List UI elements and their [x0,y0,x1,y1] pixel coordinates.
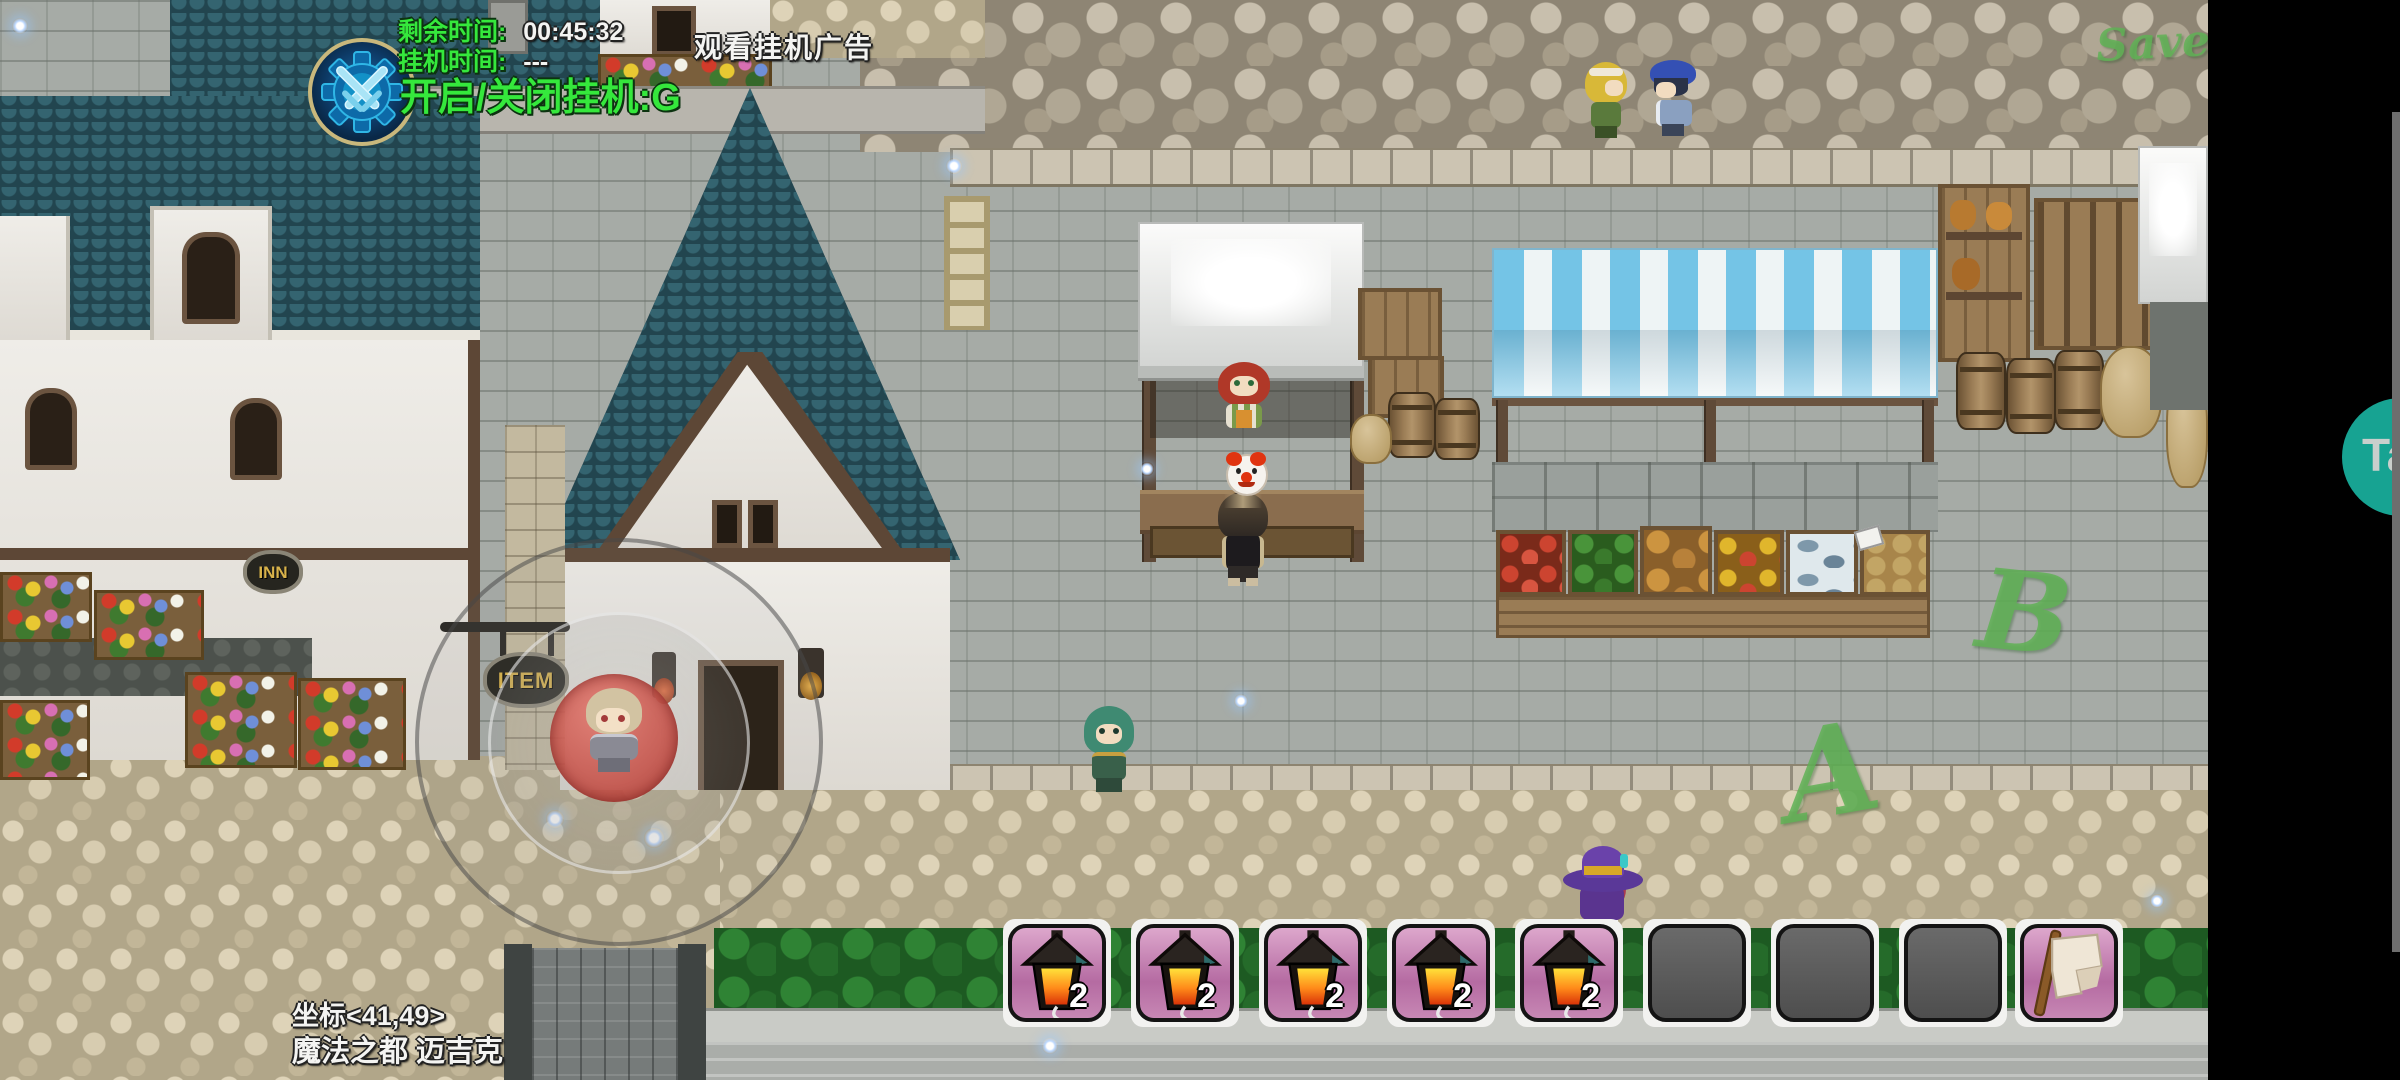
sparkle [1042,1038,1058,1054]
slot-body [2020,924,2118,1022]
slot-count: 2 [1453,977,1472,1016]
lantern-icon [1140,928,1230,1018]
sparkle [946,158,962,174]
player-avatar [584,688,644,784]
npc-green-hair [1084,706,1134,792]
church-window-2 [748,500,778,548]
inn-sign: INN [243,550,303,594]
watch-ad-button[interactable]: 观看挂机广告 [694,26,874,66]
inn-sign-label: INN [258,563,287,582]
dormer-window [182,232,240,324]
lane-wall-left [504,944,532,1080]
barrel-b3 [2054,350,2104,430]
lantern-icon [1012,928,1102,1018]
stall3-interior [2150,302,2208,410]
building-a-window-2 [230,398,282,480]
barrel-a1 [1388,392,1436,458]
upper-window [652,6,696,56]
church-window-1 [712,500,742,548]
sparkle [1140,462,1154,476]
slot-body [1904,924,2002,1022]
south-lane [532,948,678,1080]
letterbox-right [2208,0,2400,1080]
building-a-window-1 [25,388,77,470]
hotbar-slot-6[interactable] [1648,924,1746,1022]
screen: INN ITEM Save B A [0,0,2400,1080]
slot-body: 2 [1008,924,1106,1022]
lane-wall-right [678,944,706,1080]
edge-scroll-strip[interactable] [2392,112,2400,952]
slot-count: 2 [1325,977,1344,1016]
hotbar-slot-7[interactable] [1776,924,1874,1022]
building-a-beam [0,548,480,560]
slot-count: 2 [1581,977,1600,1016]
slot-count: 2 [1069,977,1088,1016]
bin-front-planks [1496,594,1930,638]
graffiti-save: Save [2095,15,2208,72]
window-flowerbox-2 [94,590,204,660]
npc-shopkeeper [1218,362,1270,432]
lantern-icon [1396,928,1486,1018]
hotbar-slot-3[interactable]: 2 [1264,924,1362,1022]
shelf-board-2 [1946,292,2022,300]
jug-2 [1986,202,2012,230]
slot-body [1648,924,1746,1022]
game-viewport: INN ITEM Save B A [0,0,2208,1080]
bin-apples [1496,530,1566,596]
npc-boy [1648,60,1698,140]
hotbar-slot-2[interactable]: 2 [1136,924,1234,1022]
barrel-a2 [1434,398,1480,460]
ladder [944,196,990,330]
scroll-icon [2024,928,2114,1018]
slot-body: 2 [1520,924,1618,1022]
barrel-b2 [2006,358,2056,434]
slot-body: 2 [1136,924,1234,1022]
joystick-knob[interactable] [550,674,678,802]
crate-a1 [1358,288,1442,360]
jug-3 [1952,258,1980,290]
stall1-awning [1138,222,1364,372]
sparkle [2150,894,2164,908]
wall-cap-row [950,148,2208,187]
hotbar-slot-1[interactable]: 2 [1008,924,1106,1022]
hotbar-slot-5[interactable]: 2 [1520,924,1618,1022]
slot-body [1776,924,1874,1022]
shelf-board-1 [1946,232,2022,240]
barrel-b1 [1956,352,2006,430]
slot-body: 2 [1392,924,1490,1022]
afk-toggle-hint[interactable]: 开启/关闭挂机:G [400,66,681,121]
player-character [1216,492,1270,586]
stall2-counter [1492,462,1938,532]
bin-fish [1786,530,1858,596]
stall3-awning [2138,146,2208,304]
bottom-road [700,1042,2208,1080]
clown-emote [1226,454,1268,496]
sack-a [1350,414,1392,464]
hotbar-slot-9[interactable] [2020,924,2118,1022]
flower-crate-3 [0,700,90,780]
bin-bread [1640,526,1712,596]
lantern-icon [1268,928,1358,1018]
dormer-left [0,216,70,346]
stall2-awning [1492,248,1938,398]
map-name-label: 魔法之都 迈吉克 [292,1028,503,1070]
stone-wall-top [860,0,2208,152]
graffiti-b: B [1972,543,2078,681]
sparkle [1234,694,1248,708]
slot-count: 2 [1197,977,1216,1016]
lantern-icon [1524,928,1614,1018]
bin-greens [1568,530,1638,596]
slot-body: 2 [1264,924,1362,1022]
hotbar-slot-8[interactable] [1904,924,2002,1022]
bin-fruit-mix [1714,530,1784,596]
hotbar-slot-4[interactable]: 2 [1392,924,1490,1022]
flower-crate-2 [298,678,406,770]
npc-girl [1583,62,1629,140]
flower-crate-1 [185,672,297,768]
lower-cobble-band [700,790,2208,940]
jug-1 [1950,200,1976,230]
sparkle [12,18,28,34]
window-flowerbox-1 [0,572,92,642]
